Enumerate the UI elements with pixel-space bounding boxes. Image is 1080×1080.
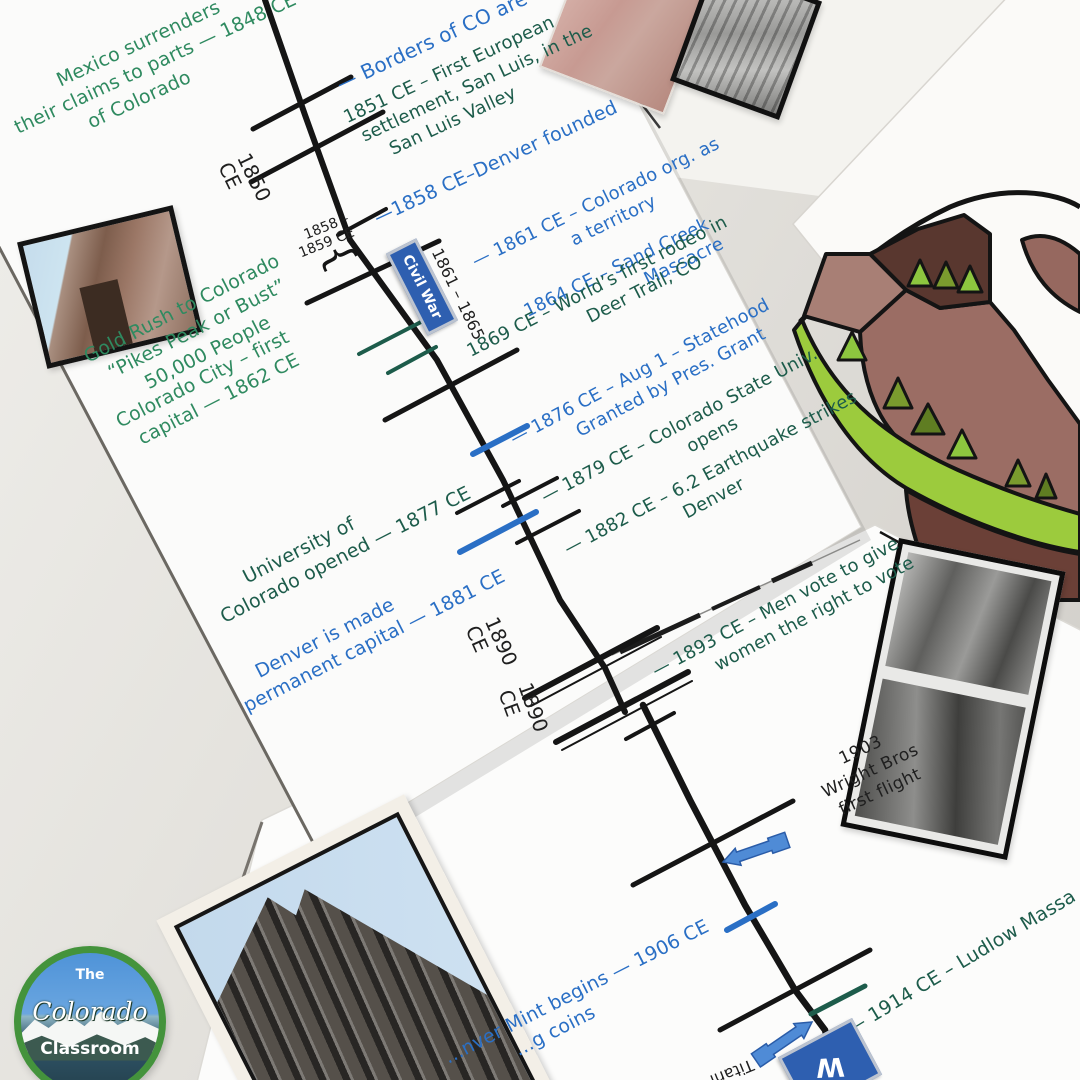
logo-text-the: The: [21, 967, 159, 983]
logo-text-colorado: Colorado: [21, 997, 159, 1026]
logo-text-classroom: Classroom: [21, 1039, 159, 1059]
colorado-classroom-logo: The Colorado Classroom: [14, 946, 166, 1080]
timeline-photo-scene: { Mexico surrenders their claims to part…: [0, 0, 1080, 1080]
wwi-sticker-label: W: [815, 1050, 845, 1080]
